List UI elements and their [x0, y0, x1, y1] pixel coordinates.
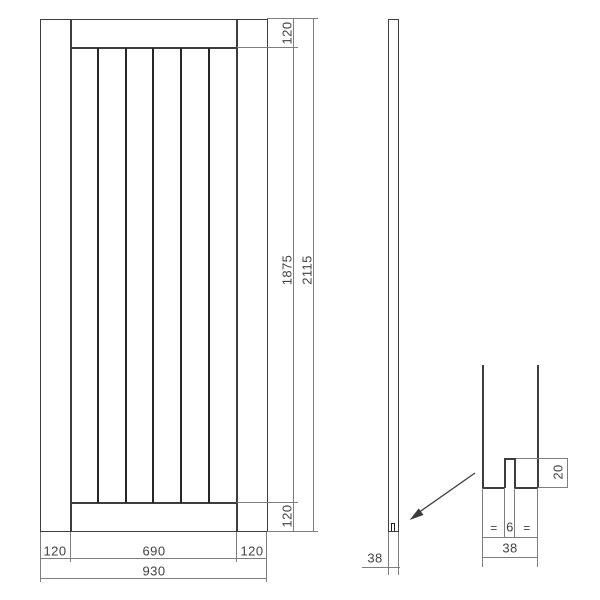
extension-line — [398, 532, 399, 575]
extension-line — [237, 502, 298, 503]
right-stile-line — [236, 19, 238, 532]
extension-line — [538, 487, 568, 488]
plank-joint-line — [125, 48, 127, 503]
dim-label-detail-width: 38 — [502, 542, 517, 555]
detail-right-face-line — [537, 365, 539, 488]
dim-label-right-stile: 120 — [241, 545, 264, 558]
dim-label-total-width: 930 — [143, 565, 166, 578]
plank-joint-line — [97, 48, 99, 503]
extension-line — [388, 532, 389, 575]
extension-line — [482, 488, 483, 567]
detail-bottom-right-line — [515, 487, 538, 489]
extension-line — [514, 488, 515, 537]
side-view-groove — [391, 523, 395, 531]
dim-label-groove-depth: 20 — [552, 464, 565, 479]
left-stile-line — [70, 19, 72, 532]
dimension-line-detail-width — [482, 557, 538, 558]
groove-left-wall-line — [504, 458, 506, 488]
dimension-line-thickness — [362, 567, 400, 568]
extension-line — [537, 488, 538, 567]
dim-label-equal-left: = — [490, 522, 497, 534]
extension-line — [40, 532, 41, 582]
dim-label-panel-height: 1875 — [281, 255, 294, 286]
dimension-line-groove-position — [482, 537, 538, 538]
detail-bottom-left-line — [482, 487, 505, 489]
extension-line — [237, 47, 298, 48]
dim-label-thickness: 38 — [367, 552, 382, 565]
detail-left-face-line — [482, 365, 484, 488]
dim-label-equal-right: = — [523, 522, 530, 534]
plank-joint-line — [208, 48, 210, 503]
door-outline — [40, 19, 268, 532]
dim-label-top-rail: 120 — [281, 22, 294, 45]
dim-label-left-stile: 120 — [44, 545, 67, 558]
dimension-line-groove-depth — [567, 458, 568, 488]
extension-line — [266, 532, 267, 582]
technical-drawing-canvas: 120 1875 2115 120 120 690 120 930 38 — [0, 0, 600, 600]
dim-label-groove-width: 6 — [506, 521, 514, 534]
plank-joint-line — [180, 48, 182, 503]
dim-label-panel-width: 690 — [143, 545, 166, 558]
groove-top-line — [504, 458, 516, 460]
side-view-outline — [388, 19, 399, 532]
extension-line — [516, 458, 568, 459]
extension-line — [504, 488, 505, 537]
dim-label-total-height: 2115 — [301, 255, 314, 285]
groove-right-wall-line — [514, 458, 516, 488]
plank-joint-line — [152, 48, 154, 503]
dim-label-bottom-rail: 120 — [281, 505, 294, 528]
